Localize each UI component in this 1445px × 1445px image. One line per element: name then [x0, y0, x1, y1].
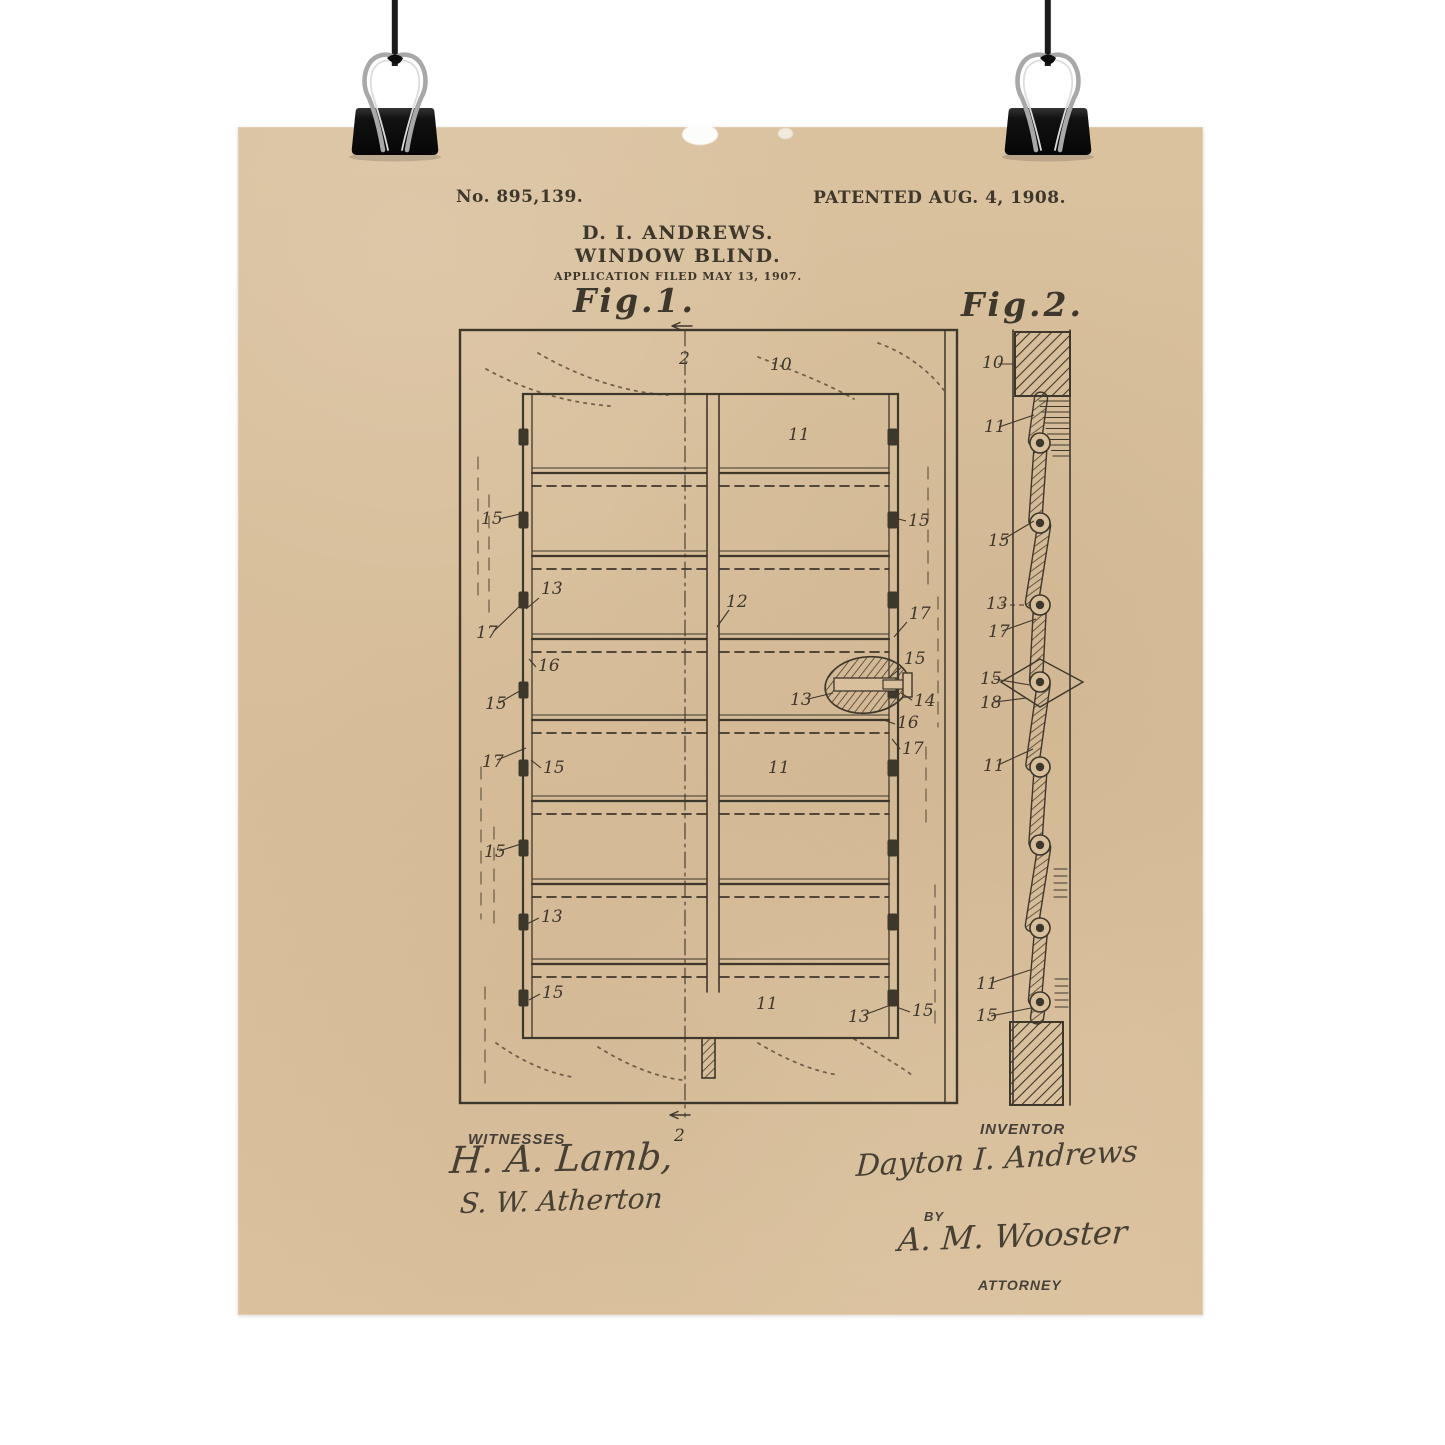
part-number-label: 13: [790, 690, 812, 710]
attorney-signature: A. M. Wooster: [897, 1213, 1129, 1259]
part-number-label: 11: [756, 994, 778, 1014]
part-number-label: 15: [543, 758, 565, 778]
part-number-label: 15: [980, 669, 1002, 689]
part-number-label: 15: [976, 1006, 998, 1026]
part-number-label: 17: [988, 622, 1010, 642]
part-number-label: 10: [770, 355, 792, 375]
part-number-label: 10: [982, 353, 1004, 373]
part-number-label: 12: [726, 592, 748, 612]
part-number-label: 14: [914, 691, 936, 711]
part-number-label: 11: [976, 974, 998, 994]
witness-signature-2: S. W. Atherton: [459, 1182, 664, 1220]
fig2-bottom-block: [1010, 1022, 1063, 1105]
binder-clip-left: [325, 0, 465, 170]
product-mockup-scene: No. 895,139. PATENTED AUG. 4, 1908. D. I…: [0, 0, 1445, 1445]
inventor-label: INVENTOR: [980, 1121, 1065, 1138]
binder-clip-right: [978, 0, 1118, 170]
part-number-label: 13: [541, 907, 563, 927]
part-number-label: 17: [482, 752, 504, 772]
part-number-label: 11: [984, 417, 1006, 437]
part-number-label: 15: [908, 511, 930, 531]
fig2-section-view: [1001, 330, 1083, 1105]
part-number-label: 16: [538, 656, 560, 676]
part-number-label: 13: [986, 594, 1008, 614]
fig1-part-labels: 2101115151312171716151513141617151711151…: [476, 349, 936, 1146]
part-number-label: 2: [678, 349, 690, 369]
witness-signature-1: H. A. Lamb,: [448, 1135, 675, 1182]
part-number-label: 16: [897, 713, 919, 733]
part-number-label: 15: [485, 694, 507, 714]
part-number-label: 15: [904, 649, 926, 669]
part-number-label: 11: [788, 425, 810, 445]
part-number-label: 11: [983, 756, 1005, 776]
part-number-label: 15: [912, 1001, 934, 1021]
part-number-label: 17: [902, 739, 924, 759]
part-number-label: 17: [476, 623, 498, 643]
part-number-label: 11: [768, 758, 790, 778]
part-number-label: 15: [542, 983, 564, 1003]
part-number-label: 15: [484, 842, 506, 862]
fig2-top-block: [1015, 332, 1070, 396]
patent-poster: No. 895,139. PATENTED AUG. 4, 1908. D. I…: [238, 127, 1203, 1315]
part-number-label: 15: [481, 509, 503, 529]
part-number-label: 13: [541, 579, 563, 599]
attorney-label: ATTORNEY: [978, 1277, 1062, 1293]
fig1-front-view: [460, 323, 957, 1119]
part-number-label: 17: [909, 604, 931, 624]
part-number-label: 15: [988, 531, 1010, 551]
part-number-label: 18: [980, 693, 1002, 713]
part-number-label: 13: [848, 1007, 870, 1027]
